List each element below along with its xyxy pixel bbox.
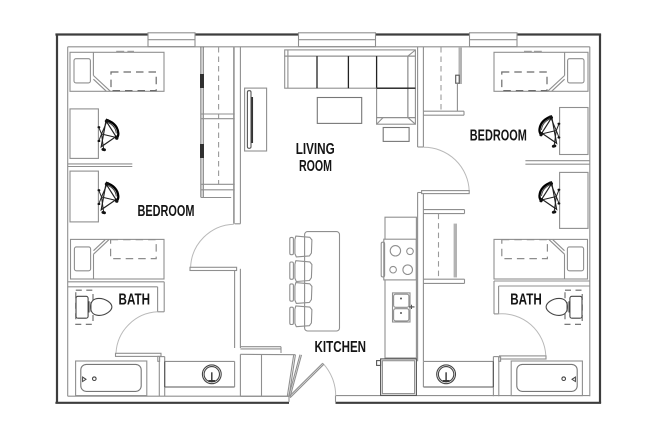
svg-text:KITCHEN: KITCHEN — [315, 339, 367, 356]
svg-text:ROOM: ROOM — [299, 158, 332, 175]
svg-text:BEDROOM: BEDROOM — [470, 127, 527, 144]
svg-text:BATH: BATH — [119, 292, 151, 309]
svg-text:BEDROOM: BEDROOM — [138, 203, 195, 220]
svg-text:LIVING: LIVING — [296, 141, 335, 158]
svg-text:BATH: BATH — [510, 291, 542, 308]
